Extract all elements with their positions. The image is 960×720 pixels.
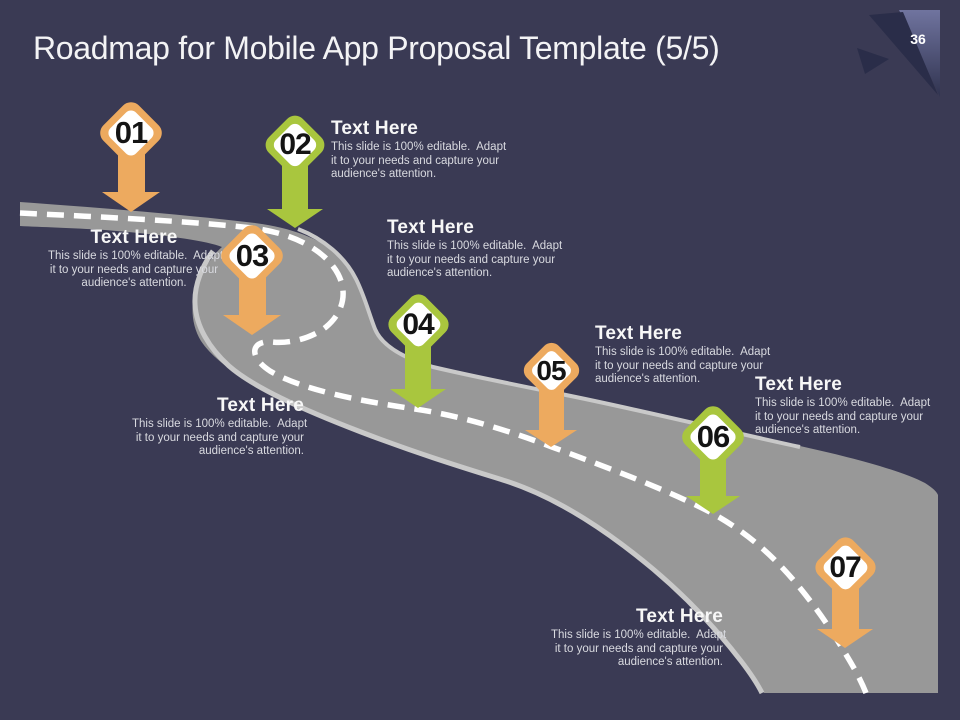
milestone-heading[interactable]: Text Here (48, 228, 220, 248)
milestone-number: 07 (796, 543, 894, 592)
milestone-body-line: it to your needs and capture your (132, 432, 304, 446)
page-corner-ribbon (850, 0, 960, 110)
milestone-body-line: This slide is 100% editable. Adapt (755, 397, 927, 411)
milestone-body-line: audience's attention. (387, 267, 559, 281)
milestone-body[interactable]: This slide is 100% editable. Adaptit to … (331, 141, 503, 182)
milestone-number: 02 (247, 121, 343, 169)
down-arrow-icon (267, 209, 323, 228)
slide-canvas: Roadmap for Mobile App Proposal Template… (0, 0, 960, 720)
milestone-body[interactable]: This slide is 100% editable. Adaptit to … (48, 250, 220, 291)
slide-title[interactable]: Roadmap for Mobile App Proposal Template… (33, 27, 719, 69)
milestone-body-line: This slide is 100% editable. Adapt (387, 240, 559, 254)
milestone-number: 04 (369, 300, 467, 349)
milestone-body-line: This slide is 100% editable. Adapt (331, 141, 503, 155)
down-arrow-icon (390, 389, 446, 408)
down-arrow-icon (686, 496, 740, 514)
milestone-body-line: it to your needs and capture your (387, 254, 559, 268)
milestone-body-line: This slide is 100% editable. Adapt (595, 346, 767, 360)
milestone-body-line: audience's attention. (132, 445, 304, 459)
milestone-body-line: audience's attention. (595, 373, 767, 387)
milestone-body-line: This slide is 100% editable. Adapt (132, 418, 304, 432)
milestone-text-block[interactable]: Text HereThis slide is 100% editable. Ad… (132, 396, 304, 459)
milestone-number: 03 (202, 231, 302, 281)
down-arrow-icon (223, 315, 281, 335)
milestone-body[interactable]: This slide is 100% editable. Adaptit to … (551, 629, 723, 670)
milestone-heading[interactable]: Text Here (551, 607, 723, 627)
milestone-body-line: it to your needs and capture your (755, 411, 927, 425)
milestone-text-block[interactable]: Text HereThis slide is 100% editable. Ad… (551, 607, 723, 670)
milestone-number: 06 (663, 412, 763, 462)
milestone-heading[interactable]: Text Here (331, 119, 503, 139)
milestone-body-line: audience's attention. (48, 277, 220, 291)
milestone-heading[interactable]: Text Here (132, 396, 304, 416)
milestone-number: 05 (506, 348, 596, 393)
milestone-body-line: it to your needs and capture your (48, 264, 220, 278)
page-number: 36 (899, 31, 937, 47)
milestone-body[interactable]: This slide is 100% editable. Adaptit to … (595, 346, 767, 387)
milestone-body-line: This slide is 100% editable. Adapt (551, 629, 723, 643)
milestone-body-line: it to your needs and capture your (551, 643, 723, 657)
milestone-heading[interactable]: Text Here (595, 324, 767, 344)
milestone-text-block[interactable]: Text HereThis slide is 100% editable. Ad… (755, 375, 927, 438)
down-arrow-icon (817, 629, 873, 648)
milestone-body-line: it to your needs and capture your (331, 155, 503, 169)
milestone-body[interactable]: This slide is 100% editable. Adaptit to … (755, 397, 927, 438)
milestone-text-block[interactable]: Text HereThis slide is 100% editable. Ad… (331, 119, 503, 182)
milestone-body[interactable]: This slide is 100% editable. Adaptit to … (132, 418, 304, 459)
milestone-body-line: it to your needs and capture your (595, 360, 767, 374)
milestone-body-line: audience's attention. (755, 424, 927, 438)
milestone-heading[interactable]: Text Here (387, 218, 559, 238)
milestone-body-line: audience's attention. (331, 168, 503, 182)
milestone-text-block[interactable]: Text HereThis slide is 100% editable. Ad… (595, 324, 767, 387)
down-arrow-icon (102, 192, 160, 212)
milestone-heading[interactable]: Text Here (755, 375, 927, 395)
down-arrow-icon (525, 430, 577, 447)
milestone-body[interactable]: This slide is 100% editable. Adaptit to … (387, 240, 559, 281)
milestone-body-line: audience's attention. (551, 656, 723, 670)
corner-fold-sliver (857, 48, 889, 74)
milestone-text-block[interactable]: Text HereThis slide is 100% editable. Ad… (48, 228, 220, 291)
milestone-text-block[interactable]: Text HereThis slide is 100% editable. Ad… (387, 218, 559, 281)
milestone-number: 01 (81, 108, 181, 158)
milestone-body-line: This slide is 100% editable. Adapt (48, 250, 220, 264)
